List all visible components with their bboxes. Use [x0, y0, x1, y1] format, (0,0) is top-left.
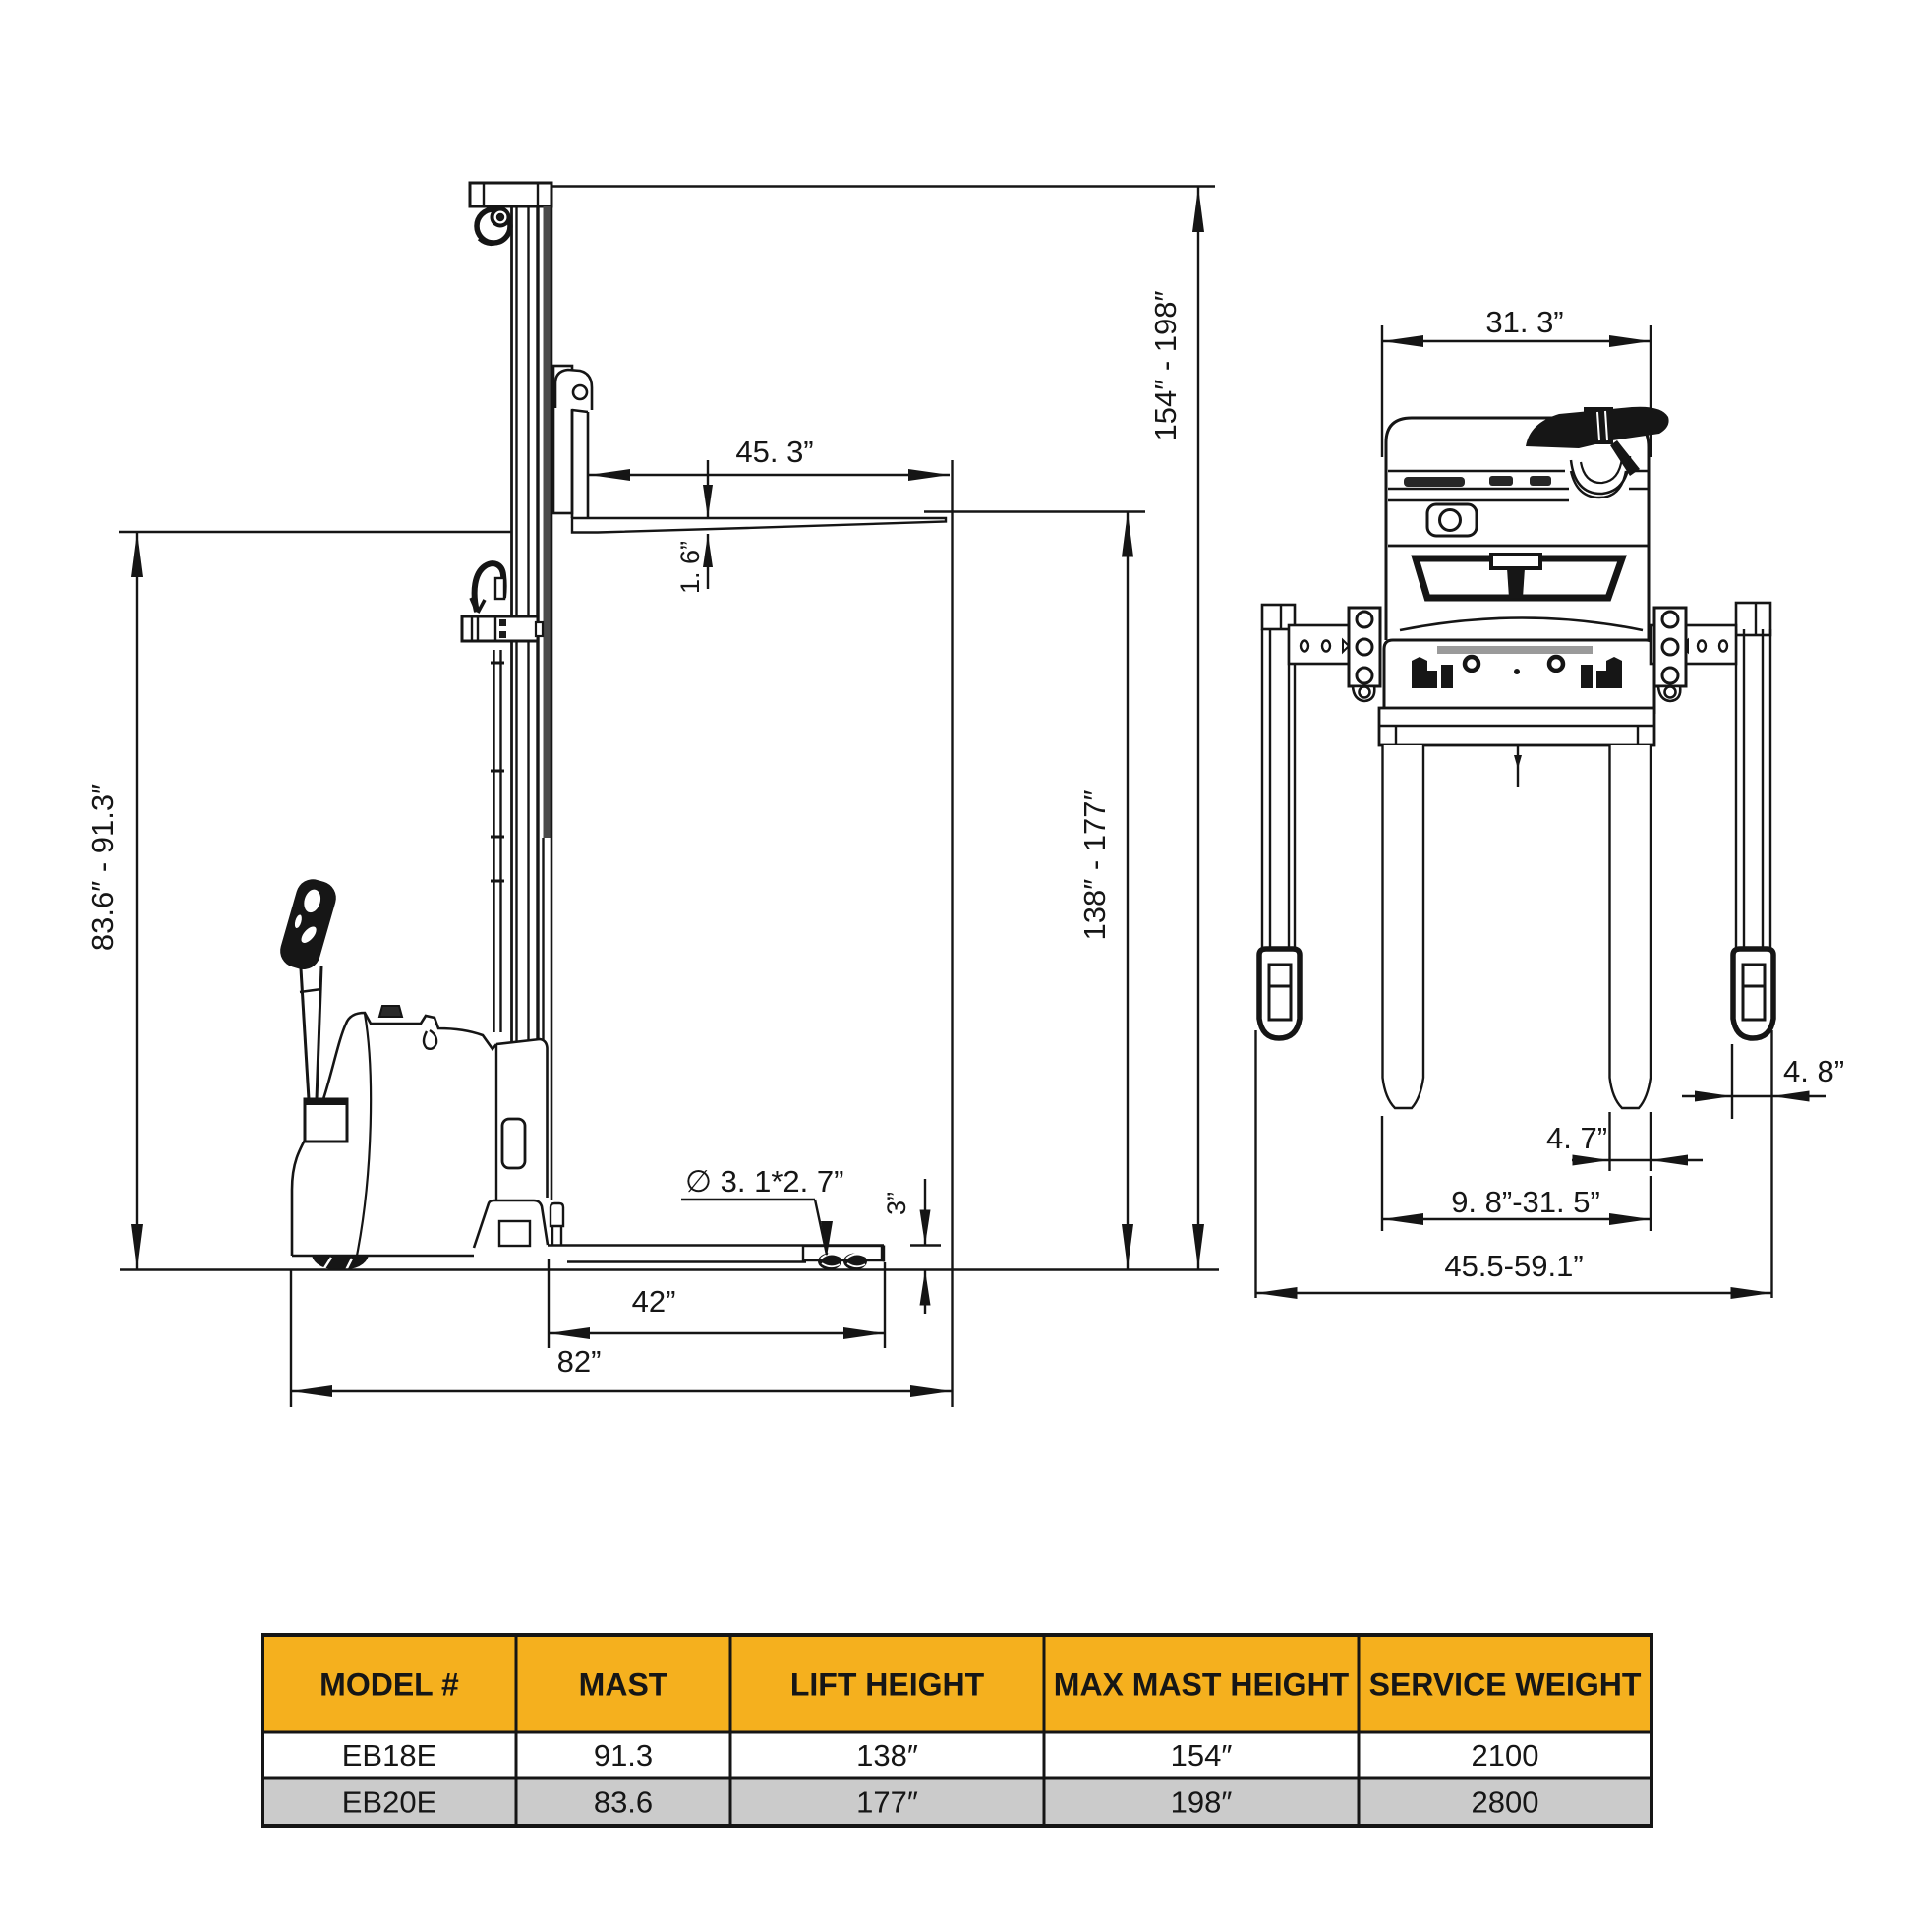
- svg-text:MAX MAST HEIGHT: MAX MAST HEIGHT: [1054, 1668, 1350, 1703]
- svg-text:MAST: MAST: [579, 1668, 668, 1703]
- svg-text:9. 8”-31. 5”: 9. 8”-31. 5”: [1451, 1185, 1600, 1219]
- svg-text:83.6: 83.6: [594, 1786, 653, 1820]
- svg-text:2800: 2800: [1472, 1786, 1539, 1820]
- svg-text:45.5-59.1”: 45.5-59.1”: [1444, 1249, 1583, 1283]
- svg-text:45. 3”: 45. 3”: [735, 435, 813, 469]
- svg-text:82”: 82”: [557, 1344, 602, 1378]
- svg-text:∅ 3. 1*2. 7”: ∅ 3. 1*2. 7”: [685, 1164, 843, 1199]
- svg-text:42”: 42”: [632, 1284, 676, 1318]
- svg-text:4. 7”: 4. 7”: [1546, 1121, 1607, 1155]
- svg-text:138″: 138″: [856, 1738, 918, 1773]
- svg-text:EB18E: EB18E: [342, 1738, 437, 1773]
- svg-text:2100: 2100: [1472, 1738, 1539, 1773]
- svg-text:4. 8”: 4. 8”: [1783, 1054, 1844, 1088]
- svg-text:91.3: 91.3: [594, 1738, 653, 1773]
- svg-text:1. 6”: 1. 6”: [675, 541, 705, 594]
- svg-text:LIFT HEIGHT: LIFT HEIGHT: [790, 1668, 985, 1703]
- svg-text:83.6″ - 91.3″: 83.6″ - 91.3″: [86, 784, 120, 951]
- svg-text:138″ - 177″: 138″ - 177″: [1077, 790, 1112, 941]
- svg-text:198″: 198″: [1171, 1786, 1233, 1820]
- svg-text:177″: 177″: [856, 1786, 918, 1820]
- svg-text:SERVICE WEIGHT: SERVICE WEIGHT: [1369, 1668, 1642, 1703]
- svg-text:EB20E: EB20E: [342, 1786, 437, 1820]
- svg-text:MODEL #: MODEL #: [319, 1668, 459, 1703]
- svg-text:154″: 154″: [1171, 1738, 1233, 1773]
- svg-text:154″ - 198″: 154″ - 198″: [1148, 291, 1183, 441]
- svg-text:3”: 3”: [882, 1192, 911, 1215]
- svg-text:31. 3”: 31. 3”: [1485, 305, 1563, 339]
